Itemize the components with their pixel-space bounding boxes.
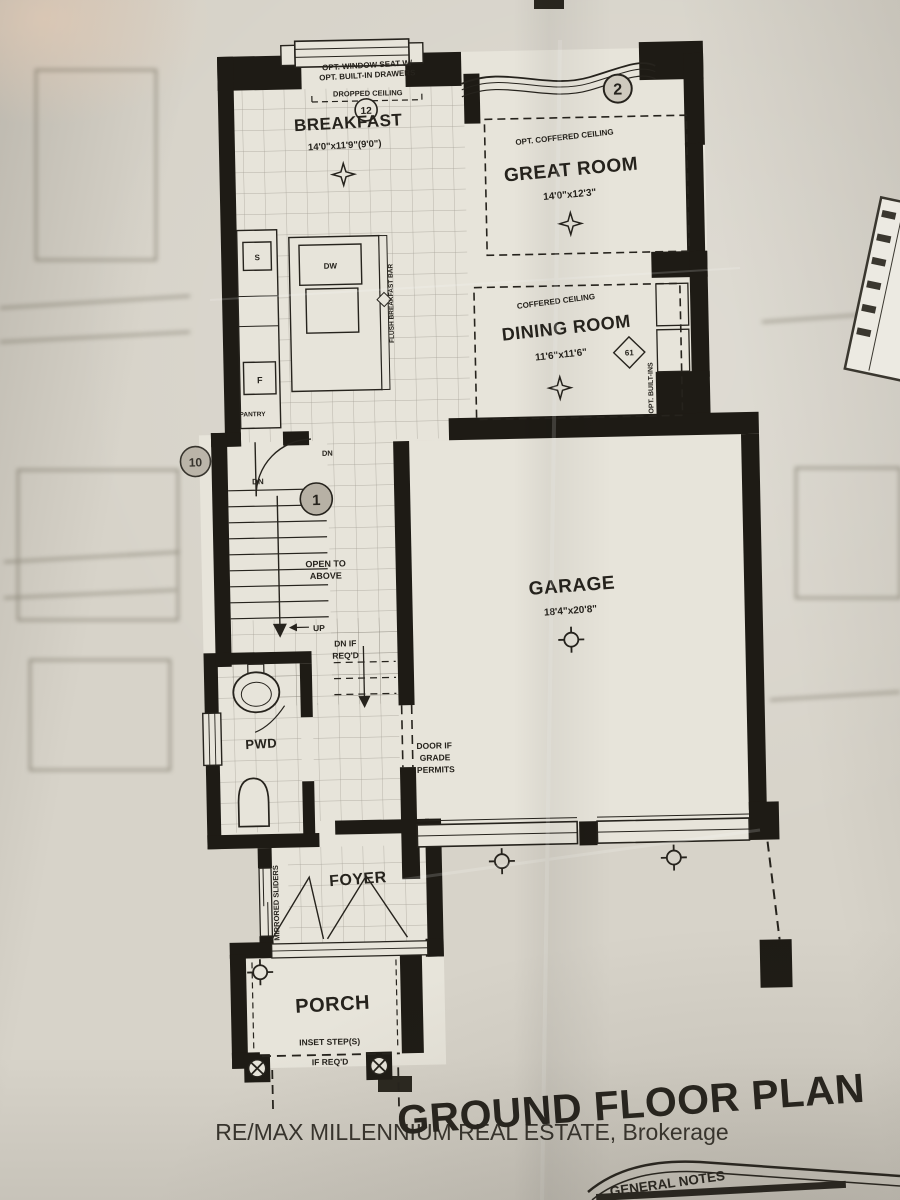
stairs-up-label: UP [313, 623, 325, 633]
pwd-window [203, 713, 222, 765]
room-name-porch: PORCH [295, 992, 371, 1018]
open-to-above-label: ABOVE [310, 570, 342, 581]
pwd-toilet [238, 778, 269, 827]
svg-text:10: 10 [189, 455, 203, 469]
sink-label: S [254, 253, 260, 262]
open-to-above-label: OPEN TO [305, 558, 346, 569]
grade-door-note: GRADE [420, 752, 451, 763]
mirrored-sliders-label: MIRRORED SLIDERS [271, 865, 282, 941]
brokerage-watermark: RE/MAX MILLENNIUM REAL ESTATE, Brokerage [215, 1119, 728, 1145]
dn-if-reqd-label: REQ'D [332, 650, 359, 661]
inset-steps-note: INSET STEP(S) [299, 1036, 360, 1047]
keynote-tag-1: 1 [300, 483, 333, 516]
porch-column-icon [370, 1057, 387, 1074]
keynote-tag-2: 2 [603, 74, 632, 103]
grade-door-note: DOOR IF [416, 740, 452, 751]
fridge-label: F [257, 375, 263, 385]
dishwasher-label: DW [324, 261, 338, 270]
grade-door-note: PERMITS [417, 764, 455, 775]
page-corner-mark [534, 0, 564, 9]
svg-text:61: 61 [625, 348, 635, 357]
pantry-label: PANTRY [239, 411, 266, 419]
stairs-dn-label: DN [322, 449, 333, 458]
svg-text:2: 2 [613, 81, 622, 98]
keynote-tag-10: 10 [180, 446, 211, 477]
plan-group: 12 2 10 1 61 OPT. WINDOW SEAT W/ OPT. [172, 31, 795, 1113]
porch-column-icon [249, 1060, 266, 1077]
built-ins-note: OPT. BUILT-INS [647, 362, 655, 414]
adjacent-sheet-fragment [845, 197, 900, 387]
dropped-ceiling-label: DROPPED CEILING [333, 88, 403, 98]
stairs-dn-label: DN [252, 477, 264, 486]
general-notes-box: GENERAL NOTES [588, 1162, 900, 1200]
kitchen-island [289, 235, 393, 391]
room-name-pwd: PWD [245, 735, 278, 752]
floor-plan-drawing: 12 2 10 1 61 OPT. WINDOW SEAT W/ OPT. [0, 0, 900, 1200]
dn-if-reqd-label: DN IF [334, 638, 356, 648]
entry-door-header [272, 941, 428, 958]
inset-steps-note: IF REQ'D [312, 1056, 349, 1067]
svg-text:1: 1 [312, 492, 321, 509]
floor-plan-photo: 12 2 10 1 61 OPT. WINDOW SEAT W/ OPT. [0, 0, 900, 1200]
